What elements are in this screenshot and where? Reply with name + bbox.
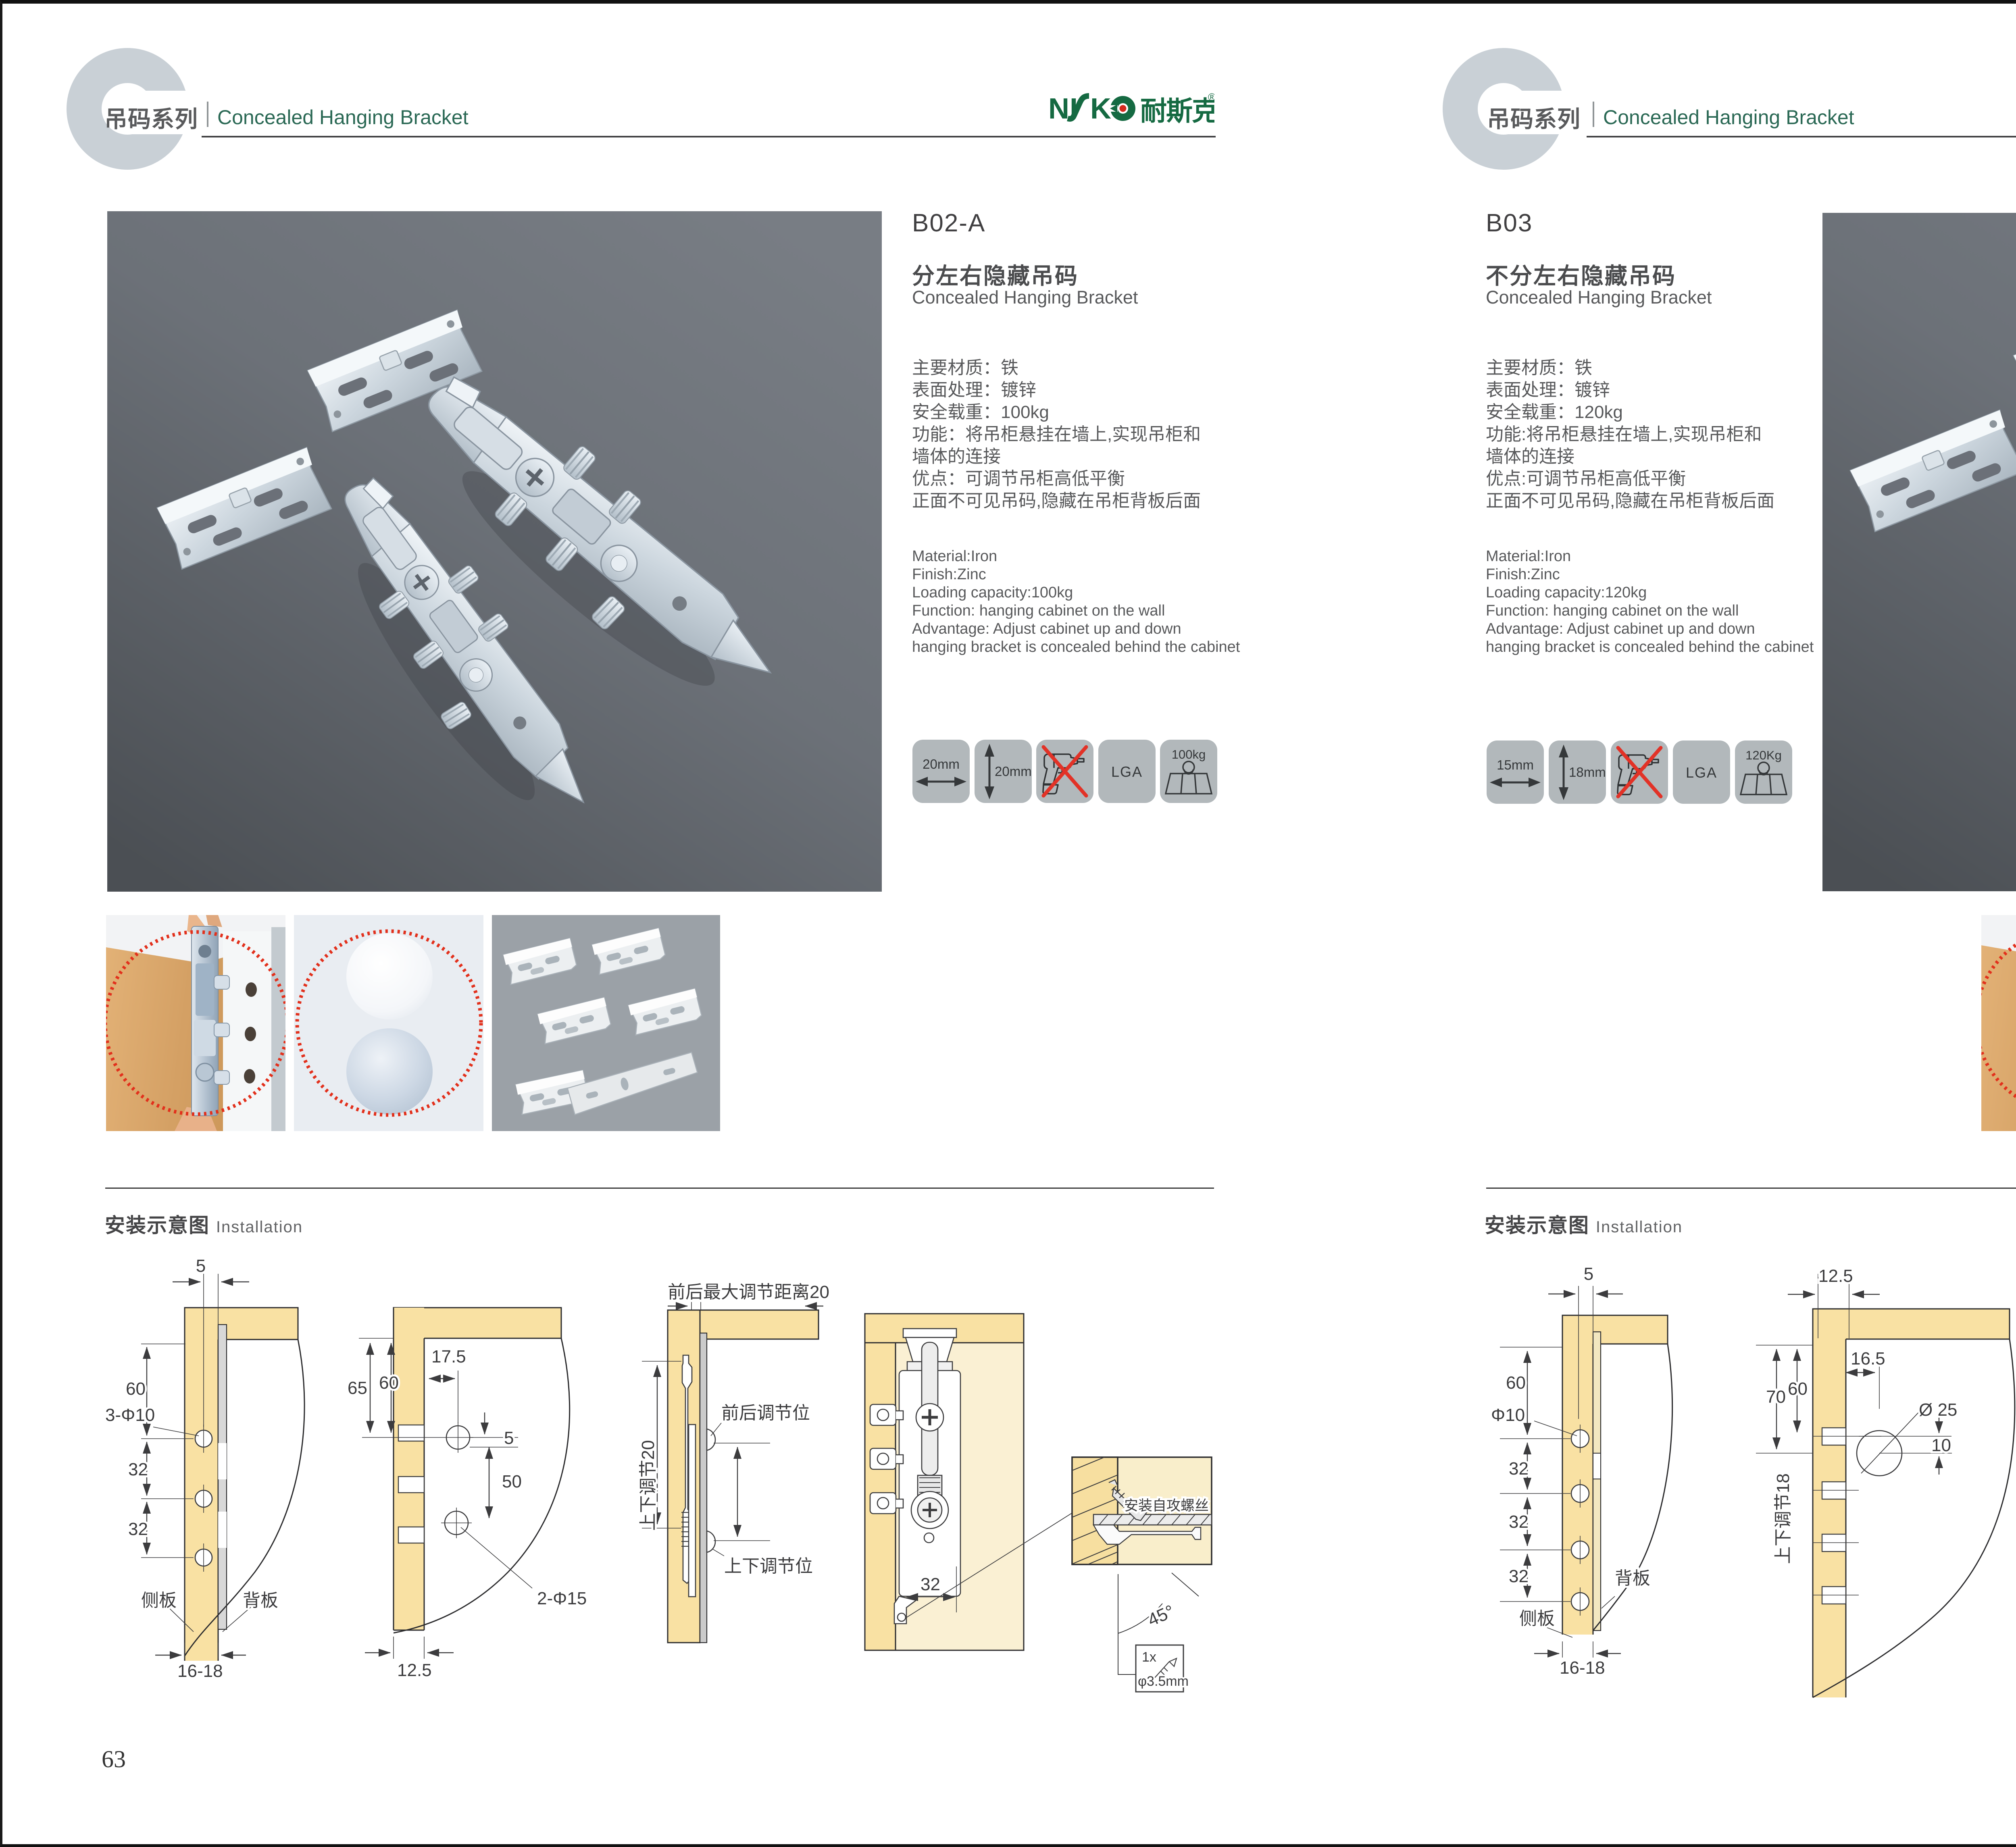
svg-text:120Kg: 120Kg xyxy=(1745,748,1782,762)
svg-text:5: 5 xyxy=(196,1256,206,1276)
svg-text:20mm: 20mm xyxy=(923,757,960,772)
svg-text:45°: 45° xyxy=(1145,1601,1177,1630)
svg-text:16.5: 16.5 xyxy=(1851,1349,1885,1369)
svg-text:100kg: 100kg xyxy=(1172,747,1206,761)
svg-text:17.5: 17.5 xyxy=(431,1347,466,1367)
svg-text:LGA: LGA xyxy=(1111,763,1143,780)
svg-text:60: 60 xyxy=(1506,1373,1526,1393)
svg-text:背板: 背板 xyxy=(243,1591,278,1610)
svg-text:15mm: 15mm xyxy=(1497,757,1534,772)
svg-text:16-18: 16-18 xyxy=(1560,1658,1605,1678)
svg-text:LGA: LGA xyxy=(1686,764,1717,781)
svg-text:32: 32 xyxy=(1509,1512,1529,1532)
svg-text:50: 50 xyxy=(502,1472,522,1491)
svg-text:60: 60 xyxy=(1788,1379,1808,1399)
svg-text:上下调节位: 上下调节位 xyxy=(724,1556,813,1576)
svg-text:32: 32 xyxy=(921,1575,940,1594)
svg-text:背板: 背板 xyxy=(1615,1568,1650,1588)
svg-text:32: 32 xyxy=(1509,1459,1529,1479)
svg-text:18mm: 18mm xyxy=(1569,765,1606,780)
svg-text:20mm: 20mm xyxy=(995,764,1032,779)
svg-text:Ø 25: Ø 25 xyxy=(1919,1400,1957,1420)
svg-text:前后最大调节距离20: 前后最大调节距离20 xyxy=(668,1282,829,1302)
svg-text:32: 32 xyxy=(128,1460,148,1479)
svg-text:®: ® xyxy=(1208,92,1214,103)
svg-text:32: 32 xyxy=(1509,1566,1529,1586)
svg-text:60: 60 xyxy=(379,1373,399,1393)
svg-text:2-Φ15: 2-Φ15 xyxy=(537,1589,587,1608)
svg-text:侧板: 侧板 xyxy=(141,1591,177,1610)
svg-text:3-Φ10: 3-Φ10 xyxy=(105,1405,155,1425)
svg-text:φ3.5mm: φ3.5mm xyxy=(1138,1674,1189,1689)
svg-text:前后调节位: 前后调节位 xyxy=(721,1403,810,1423)
svg-text:耐斯克: 耐斯克 xyxy=(1140,96,1214,126)
svg-text:10: 10 xyxy=(1931,1435,1951,1455)
svg-text:安装自攻螺丝: 安装自攻螺丝 xyxy=(1124,1498,1209,1514)
svg-text:12.5: 12.5 xyxy=(397,1660,432,1680)
svg-text:上下调节18: 上下调节18 xyxy=(1773,1473,1793,1564)
svg-text:侧板: 侧板 xyxy=(1519,1609,1555,1629)
svg-text:60: 60 xyxy=(126,1379,146,1399)
svg-text:K: K xyxy=(1090,93,1111,125)
svg-text:32: 32 xyxy=(128,1519,148,1539)
svg-text:12.5: 12.5 xyxy=(1818,1266,1853,1286)
svg-text:上下调节20: 上下调节20 xyxy=(638,1440,658,1531)
svg-text:5: 5 xyxy=(1584,1264,1593,1284)
svg-text:5: 5 xyxy=(504,1428,514,1448)
svg-text:Φ10: Φ10 xyxy=(1491,1405,1525,1425)
svg-text:1x: 1x xyxy=(1142,1649,1156,1665)
svg-text:16-18: 16-18 xyxy=(177,1661,223,1681)
svg-text:65: 65 xyxy=(348,1378,367,1398)
svg-text:70: 70 xyxy=(1766,1387,1786,1407)
